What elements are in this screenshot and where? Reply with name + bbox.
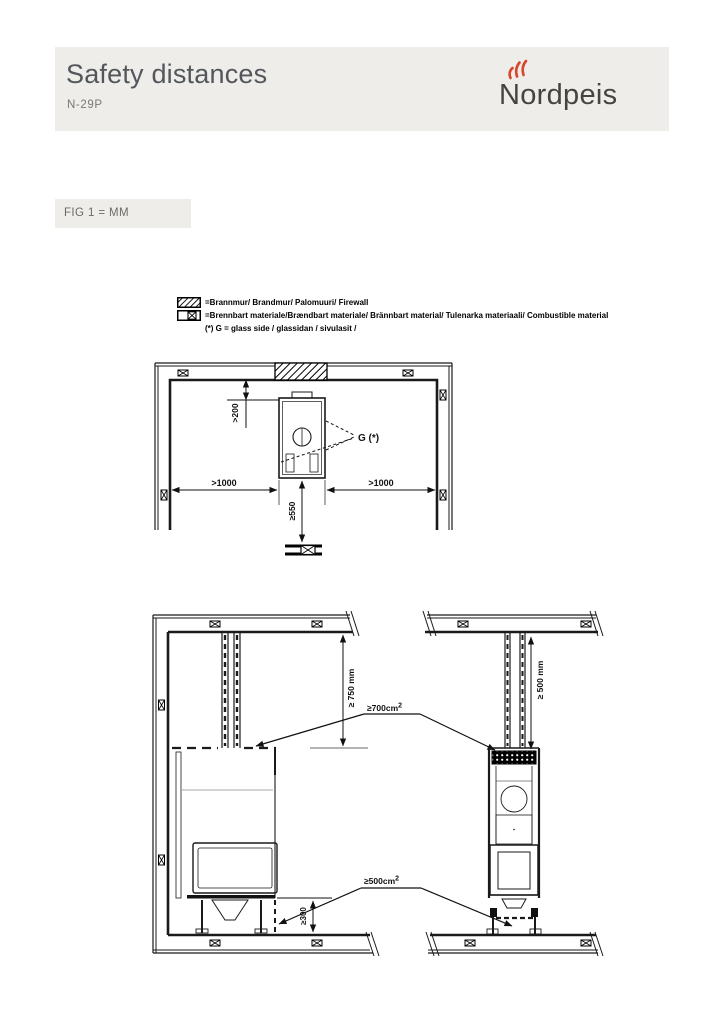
side-view-diagrams: ≥ 750 mm ≥700cm2 ≥500cm2 ≥300 bbox=[140, 600, 620, 980]
firewall-hatch-swatch bbox=[177, 297, 201, 308]
figure-label: FIG 1 = MM bbox=[55, 199, 191, 228]
label-rear-clearance: >200 bbox=[230, 403, 240, 422]
brand-logo: Nordpeis bbox=[499, 55, 649, 125]
label-bottom-vent: ≥500cm2 bbox=[364, 876, 399, 887]
label-ceiling-right: ≥ 500 mm bbox=[535, 660, 545, 699]
label-front-clearance: ≥550 bbox=[287, 501, 297, 520]
label-top-vent: ≥700cm2 bbox=[367, 703, 402, 714]
side-view-structure bbox=[153, 611, 379, 956]
label-left-clearance: >1000 bbox=[211, 478, 236, 488]
legend-firewall-text: =Brannmur/ Brandmur/ Palomuuri/ Firewall bbox=[205, 298, 368, 307]
chimney-side-view bbox=[222, 632, 240, 748]
top-vent-callout bbox=[256, 714, 495, 750]
label-ceiling-left: ≥ 750 mm bbox=[346, 668, 356, 707]
legend-combustible-text: =Brennbart materiale/Brændbart materiale… bbox=[205, 311, 608, 320]
stove-front-view bbox=[487, 748, 541, 934]
combustible-floor-symbol bbox=[285, 545, 322, 556]
convection-grille bbox=[492, 751, 536, 764]
page-title: Safety distances bbox=[66, 59, 267, 90]
front-view-structure bbox=[423, 611, 603, 956]
label-floor-clearance: ≥300 bbox=[299, 907, 308, 925]
bottom-vent-callout bbox=[279, 888, 512, 926]
legend: =Brannmur/ Brandmur/ Palomuuri/ Firewall… bbox=[177, 296, 647, 335]
legend-glass-text: (*) G = glass side / glassidan / sivulas… bbox=[205, 324, 356, 333]
brand-name: Nordpeis bbox=[499, 79, 617, 112]
model-code: N-29P bbox=[67, 99, 103, 111]
label-glass-marker: G (*) bbox=[358, 433, 379, 444]
insert-side-view bbox=[187, 843, 277, 933]
legend-row-glass: (*) G = glass side / glassidan / sivulas… bbox=[177, 322, 647, 335]
glass-side-callout bbox=[281, 421, 354, 462]
top-view-walls bbox=[155, 363, 452, 530]
manual-page: Safety distances N-29P Nordpeis FIG 1 = … bbox=[0, 0, 724, 1024]
legend-row-combustible: =Brennbart materiale/Brændbart materiale… bbox=[177, 309, 647, 322]
firewall-block bbox=[275, 363, 327, 380]
page-header: Safety distances N-29P Nordpeis bbox=[55, 47, 669, 131]
top-view-diagram: >200 >1000 >1000 ≥550 G (*) bbox=[140, 350, 480, 575]
label-right-clearance: >1000 bbox=[368, 478, 393, 488]
legend-row-firewall: =Brannmur/ Brandmur/ Palomuuri/ Firewall bbox=[177, 296, 647, 309]
combustible-swatch bbox=[177, 310, 201, 321]
chimney-front-view bbox=[505, 632, 525, 748]
